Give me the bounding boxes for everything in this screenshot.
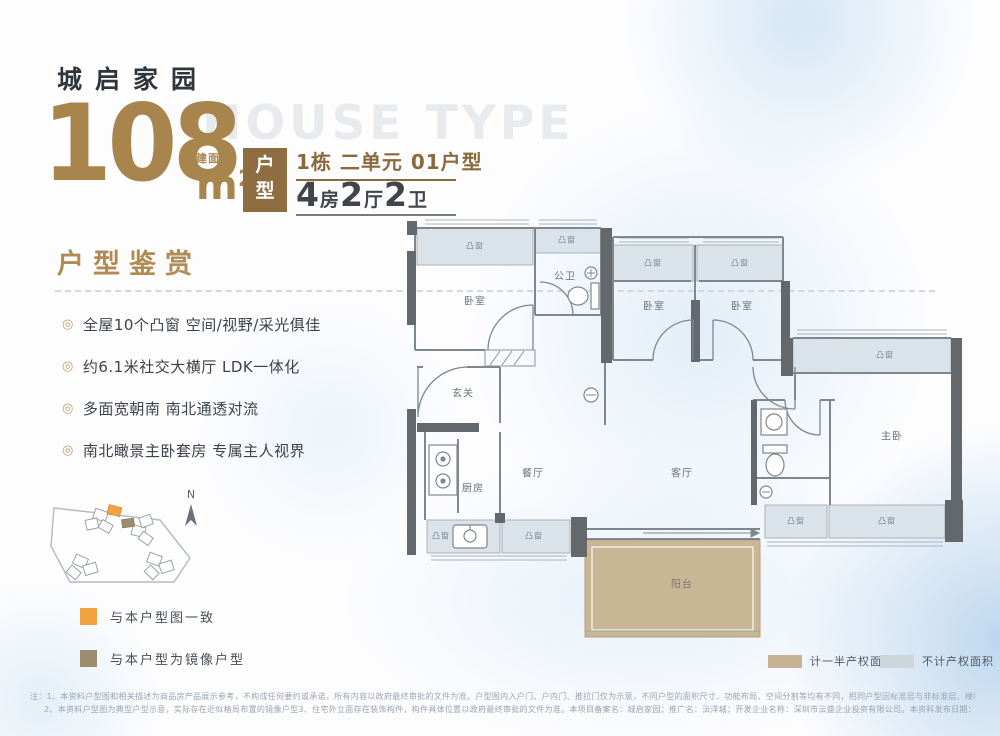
feature-list: ◎ 全屋10个凸窗 空间/视野/采光俱佳 ◎ 约6.1米社交大横厅 LDK一体化…: [62, 314, 321, 482]
layout-part: 房: [319, 185, 340, 212]
tan-swatch-icon: [768, 655, 802, 668]
site-map-mirror-unit: [122, 518, 135, 528]
room-label-bedroom1: 卧室: [464, 293, 486, 308]
bay-window-label: 凸窗: [466, 241, 484, 252]
room-label-bedroom2: 卧室: [643, 298, 665, 313]
site-map: N: [48, 486, 253, 604]
gray-swatch-icon: [880, 655, 914, 668]
type-badge-char: 型: [243, 179, 287, 205]
footnote-line2: 2、本资料户型图为典型户型示意，实际存在近似格局布置的镜像户型3、住宅外立面存在…: [30, 704, 975, 715]
bullet-icon: ◎: [62, 359, 74, 374]
feature-item: ◎ 全屋10个凸窗 空间/视野/采光俱佳: [62, 314, 321, 335]
bay-window-label: 凸窗: [558, 235, 576, 246]
north-arrow-icon: [185, 504, 197, 526]
feature-item: ◎ 多面宽朝南 南北通透对流: [62, 398, 321, 419]
room-label-balcony: 阳台: [671, 576, 693, 591]
room-label-master: 主卧: [881, 428, 903, 443]
bay-window-label: 凸窗: [432, 531, 450, 542]
site-map-drawing: N: [48, 486, 253, 604]
bay-window-label: 凸窗: [731, 258, 749, 269]
footnote-line1: 注：1、本资料户型图和相关描述为商品房产品展示参考，不构成任何要约或承诺，所有内…: [30, 691, 975, 702]
bullet-icon: ◎: [62, 443, 74, 458]
map-legend-item-mirror: 与本户型为镜像户型: [80, 649, 245, 668]
brown-swatch-icon: [80, 650, 97, 667]
feature-text: 多面宽朝南 南北通透对流: [83, 398, 259, 419]
layout-part: 2: [340, 178, 363, 211]
room-label-bath-public: 公卫: [554, 268, 576, 283]
bay-window-label: 凸窗: [525, 531, 543, 542]
type-badge-char: 户: [243, 153, 287, 179]
north-label: N: [187, 488, 195, 501]
room-label-kitchen: 厨房: [462, 480, 484, 495]
plan-legend-no-area: 不计产权面积: [880, 653, 994, 669]
map-legend-label: 与本户型为镜像户型: [110, 649, 245, 668]
feature-text: 全屋10个凸窗 空间/视野/采光俱佳: [83, 314, 321, 335]
bullet-icon: ◎: [62, 401, 74, 416]
room-label-entry: 玄关: [452, 385, 474, 400]
feature-item: ◎ 南北瞰景主卧套房 专属主人视界: [62, 440, 321, 461]
bullet-icon: ◎: [62, 317, 74, 332]
bay-window-label: 凸窗: [878, 516, 896, 527]
layout-part: 4: [296, 178, 319, 211]
plan-legend-label: 不计产权面积: [922, 653, 994, 669]
bay-window-label: 凸窗: [876, 350, 894, 361]
bay-window-label: 凸窗: [644, 258, 662, 269]
feature-text: 南北瞰景主卧套房 专属主人视界: [83, 440, 305, 461]
bay-window-label: 凸窗: [787, 516, 805, 527]
poster-canvas: 城启家园 HOUSE TYPE 108 建面约 m² 户 型 1栋 二单元 01…: [0, 0, 1000, 736]
feature-text: 约6.1米社交大横厅 LDK一体化: [83, 356, 300, 377]
house-type-watermark: HOUSE TYPE: [202, 96, 574, 151]
map-legend-item-same: 与本户型图一致: [80, 607, 215, 626]
feature-item: ◎ 约6.1米社交大横厅 LDK一体化: [62, 356, 321, 377]
plan-legend-half-area: 计一半产权面积: [768, 653, 894, 669]
orange-swatch-icon: [80, 608, 97, 625]
floor-plan: 卧室 公卫 卧室 卧室 主卧 玄关 厨房 餐厅 客厅 阳台 凸窗 凸窗 凸窗 凸…: [395, 195, 985, 655]
room-label-dining: 餐厅: [522, 465, 544, 480]
type-badge: 户 型: [243, 148, 287, 212]
unit-info: 1栋 二单元 01户型: [296, 146, 456, 181]
map-legend-label: 与本户型图一致: [110, 607, 215, 626]
room-label-bedroom3: 卧室: [731, 298, 753, 313]
room-label-living: 客厅: [671, 465, 693, 480]
features-title: 户型鉴赏: [57, 242, 201, 281]
layout-part: 厅: [363, 185, 384, 212]
